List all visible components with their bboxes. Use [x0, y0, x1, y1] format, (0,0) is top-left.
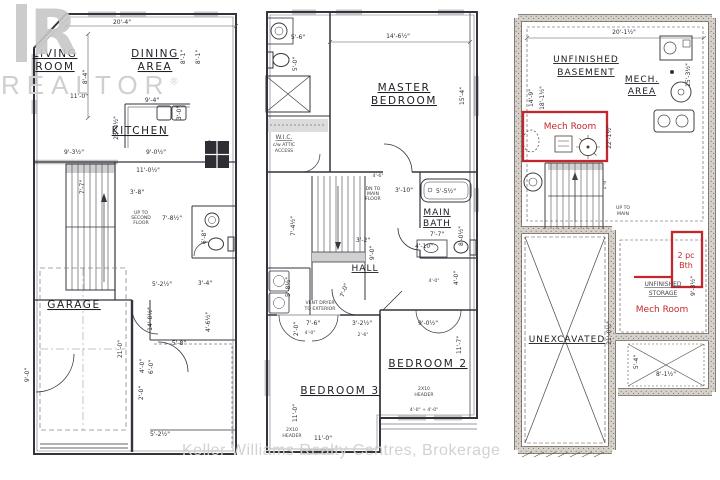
floor3-label-2: MECH.	[625, 75, 659, 85]
floor1-label-34: 9'-0"	[24, 368, 31, 382]
floor3-label-13: 2 pc	[677, 251, 694, 260]
floor1-label-23: 7'-7"	[79, 180, 86, 194]
floor2-label-29: 4'-0"	[429, 278, 440, 284]
floor1-label-9: 8'-1"	[180, 50, 187, 64]
floor2-label-38: HEADER	[414, 392, 434, 398]
floor1-label-30: 5'-8"	[172, 340, 186, 347]
floor2-label-44: 11'-0"	[314, 435, 332, 442]
floor3-label-11: MAIN	[617, 211, 629, 217]
floor1-label-26: 3'-4"	[198, 280, 212, 287]
second-floor-stairs-icon	[312, 176, 365, 262]
floor2-label-11: FLOOR	[365, 196, 381, 202]
basement-floor-plan: UNFINISHEDBASEMENTMECH.AREA20'-1½"14'-9"…	[518, 18, 712, 457]
floor1-label-10: 8'-1"	[195, 50, 202, 64]
floor2-label-39: 11'-7"	[456, 336, 463, 354]
floor1-label-22: 7'-8½"	[162, 215, 182, 222]
floor2-label-22: 8'-0½"	[458, 226, 465, 246]
floor3-label-9: Mech Room	[544, 122, 596, 132]
floor1-label-0: LIVING	[33, 48, 78, 60]
floor2-label-42: 2X10	[286, 427, 298, 433]
floor2-label-0: MASTER	[378, 82, 431, 94]
floor2-label-12: 4'-6"	[373, 173, 384, 179]
floor3-label-18: Mech Room	[636, 305, 688, 315]
floor1-label-33: 2'-0"	[138, 386, 145, 400]
second-floor-dim-lines	[328, 40, 472, 44]
floor2-label-18: 7'-4½"	[290, 216, 297, 236]
door-arc	[36, 354, 74, 392]
floor1-label-35: 5'-2½"	[150, 431, 170, 438]
floorplan-image: LIVINGROOMDININGAREAKITCHENGARAGE20'-4"8…	[0, 0, 720, 480]
floor1-label-25: 5'-2½"	[152, 281, 172, 288]
floor3-label-8: 22'-1½"	[606, 125, 613, 149]
floor2-label-33: 3'-2½"	[352, 320, 372, 327]
floor2-label-4: ACCESS	[275, 148, 293, 154]
floor3-label-16: STORAGE	[649, 290, 678, 297]
floor3-label-22: 8'-1½"	[656, 371, 676, 378]
floor2-label-20: 9'-0"	[369, 246, 376, 260]
door-arc	[384, 144, 412, 172]
floor1-label-28: 4'-6½"	[205, 312, 212, 332]
closet-door-arcs	[279, 315, 338, 341]
floor1-label-6: 20'-4"	[113, 19, 131, 26]
floor2-label-1: BEDROOM	[371, 95, 437, 107]
floor2-label-45: 4'-0" + 4'-0"	[410, 407, 439, 413]
floor3-label-12: 1'-0"	[602, 179, 608, 190]
floor1-label-11: 9'-4"	[145, 97, 159, 104]
floor1-label-24: 6'-8"	[201, 230, 208, 244]
basement-stairs-icon	[545, 163, 603, 229]
floor2-label-17: 7'-7"	[430, 231, 444, 238]
floor1-label-1: ROOM	[35, 61, 74, 73]
floor1-label-29: 21'-0"	[117, 340, 124, 358]
floor3-label-5: 14'-9"	[528, 89, 535, 107]
floor2-label-13: 3'-10"	[395, 187, 413, 194]
floor2-label-15: MAIN	[423, 208, 450, 218]
floor1-label-5: GARAGE	[47, 299, 101, 311]
floor2-label-30: 7'-6"	[306, 320, 320, 327]
floor2-label-6: 5'-0"	[292, 57, 299, 71]
floor3-label-3: AREA	[628, 87, 656, 97]
floor2-label-36: BEDROOM 2	[388, 358, 467, 370]
floor3-label-19: UNEXCAVATED	[529, 335, 606, 345]
floor1-label-3: AREA	[138, 61, 173, 73]
floor3-label-6: 18'-1½"	[539, 86, 546, 110]
floor1-label-21: FLOOR	[133, 220, 149, 226]
floor1-label-18: 3'-8"	[130, 189, 144, 196]
shower-icon	[266, 76, 310, 112]
floor2-label-37: 2X10	[418, 386, 430, 392]
floor1-label-14: 9'-0½"	[146, 149, 166, 156]
floor1-label-31: 4'-0"	[139, 359, 146, 373]
floor3-label-15: UNFINISHED	[644, 281, 681, 288]
sink-icon	[205, 213, 219, 227]
basement-dim-lines	[525, 36, 706, 40]
floor2-label-34: 2'-6"	[358, 332, 369, 338]
floor1-label-27: 14'-0½"	[147, 307, 154, 331]
floor2-label-2: W.I.C.	[276, 134, 293, 141]
floor1-label-16: 6'-4"	[208, 140, 215, 154]
main-floor-plan: LIVINGROOMDININGAREAKITCHENGARAGE20'-4"8…	[24, 12, 238, 455]
floor3-label-0: UNFINISHED	[553, 55, 619, 65]
floorplan-svg: LIVINGROOMDININGAREAKITCHENGARAGE20'-4"8…	[0, 0, 720, 480]
floor1-label-7: 8'-4"	[82, 70, 89, 84]
floor1-label-12: 3'-0"	[176, 106, 183, 120]
floor1-labels: LIVINGROOMDININGAREAKITCHENGARAGE20'-4"8…	[24, 19, 215, 438]
floor2-labels: MASTERBEDROOMW.I.C.c/w ATTICACCESS5'-6"5…	[273, 33, 468, 442]
door-leaf	[383, 291, 402, 310]
sink-icon	[271, 23, 287, 39]
floor2-label-19: 3'-2"	[356, 237, 370, 244]
floor2-label-14: 5'-5½"	[436, 188, 456, 195]
floor2-label-32: 4'-0"	[305, 330, 316, 336]
floor2-label-35: 9'-0½"	[418, 320, 438, 327]
floor3-labels: UNFINISHEDBASEMENTMECH.AREA20'-1½"14'-9"…	[528, 29, 697, 378]
floor2-label-7: 14'-6½"	[386, 33, 410, 40]
floor3-label-21: 5'-4"	[633, 355, 640, 369]
floor3-label-7: 15'-3½"	[685, 63, 692, 87]
floor3-label-4: 20'-1½"	[612, 29, 636, 36]
door-arc	[132, 308, 158, 334]
floor3-label-10: UP TO	[616, 205, 630, 211]
floor2-label-8: 15'-4"	[459, 87, 466, 105]
floor1-label-15: 9'-3½"	[64, 149, 84, 156]
floor1-label-32: 6'-0"	[148, 360, 155, 374]
main-floor-stairs-icon	[66, 164, 115, 290]
floor2-label-43: HEADER	[282, 433, 302, 439]
floor2-label-21: 4'-10"	[415, 243, 433, 250]
floor1-label-4: KITCHEN	[112, 125, 169, 137]
floor2-label-40: BEDROOM 3	[300, 385, 379, 397]
floor1-label-17: 11'-0½"	[136, 167, 160, 174]
floor2-label-27: 7'-0"	[339, 282, 351, 298]
floor2-label-26: TO EXTERIOR	[304, 306, 337, 312]
hrv-icon	[555, 136, 572, 152]
floor3-label-17: 9'-3½"	[690, 276, 697, 296]
floor2-label-41: 11'-0"	[292, 404, 299, 422]
floor2-label-5: 5'-6"	[291, 34, 305, 41]
toilet-icon	[209, 237, 235, 251]
rough-in-icon	[523, 130, 539, 152]
wic-closet	[268, 119, 328, 132]
floor3-label-14: Bth	[679, 261, 693, 270]
floor2-label-23: HALL	[352, 264, 379, 274]
floor2-label-31: 2'-0"	[293, 322, 300, 336]
floor3-label-1: BASEMENT	[557, 68, 614, 78]
second-floor-plan: MASTERBEDROOMW.I.C.c/w ATTICACCESS5'-6"5…	[265, 10, 480, 455]
floor2-label-3: c/w ATTIC	[273, 142, 295, 148]
floor3-label-20: 21'-0½"	[606, 321, 613, 345]
floor1-label-13: 23'-4½"	[113, 116, 120, 140]
floor1-label-8: 11'-0"	[70, 93, 88, 100]
floor1-label-2: DINING	[131, 48, 179, 60]
floor2-label-28: 4'-0"	[453, 271, 460, 285]
floor2-label-16: BATH	[423, 219, 451, 229]
door-arc	[302, 154, 320, 172]
floor2-label-24: 5'-8½"	[285, 277, 292, 297]
floor2-label-25: VENT DRYER	[305, 300, 335, 306]
